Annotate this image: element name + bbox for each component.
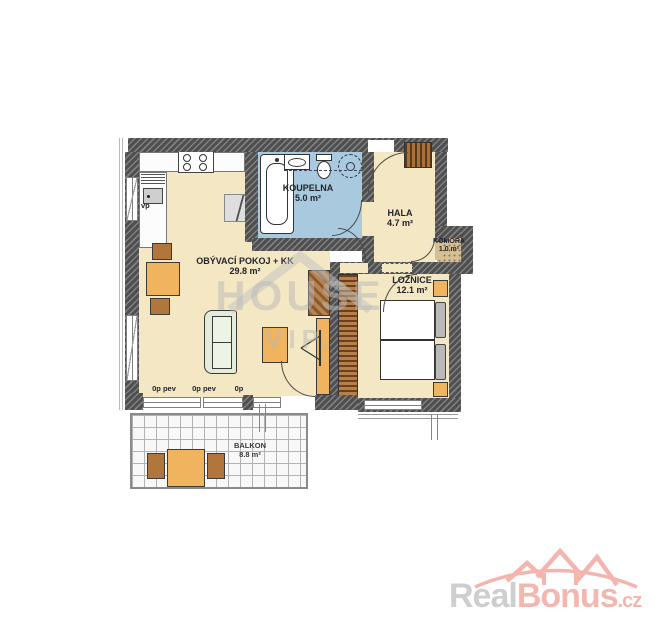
room-name-bathroom: KOUPELNA — [283, 183, 334, 193]
toilet — [314, 154, 334, 180]
room-label-living: OBÝVACÍ POKOJ + KK 29.8 m² — [170, 256, 320, 277]
entrance-opening — [368, 140, 394, 152]
room-area-living: 29.8 m² — [229, 266, 260, 276]
room-name-living: OBÝVACÍ POKOJ + KK — [196, 256, 294, 266]
wall-bedroom-right — [449, 274, 461, 400]
wall-kitchen-bathroom — [245, 152, 258, 242]
dining-chair-top — [152, 243, 172, 260]
window-annotation-3: 0p — [229, 385, 249, 394]
logo-wordmark: RealBonus.cz — [449, 579, 653, 613]
balcony-chair-left — [147, 453, 165, 479]
window-annotation-3-text: 0p — [235, 384, 244, 393]
room-area-storage: 1.0 m² — [439, 246, 459, 253]
bed-headboard-bottom — [435, 344, 446, 380]
bedroom-wardrobe — [338, 274, 358, 396]
living-window-left — [126, 315, 138, 381]
sink-faucet-dot — [147, 195, 150, 198]
bedroom-window — [364, 400, 422, 410]
wall-bottom-right-segment — [315, 395, 358, 410]
room-label-hall: HALA 4.7 m² — [374, 208, 426, 229]
living-window-bottom-2 — [203, 397, 243, 408]
room-name-hall: HALA — [388, 208, 413, 218]
dining-chair-bottom — [150, 298, 170, 315]
stove-burner — [183, 163, 191, 171]
sofa — [204, 310, 237, 374]
hall-living-passage-floor — [362, 200, 374, 238]
sink-annotation: vp — [141, 202, 163, 211]
living-window-bottom-3 — [253, 397, 281, 408]
bed-mattress-bottom — [380, 340, 435, 380]
wall-top — [128, 138, 448, 152]
room-area-bathroom: 5.0 m² — [295, 193, 321, 203]
living-hall-opening — [340, 263, 368, 273]
living-armoire — [308, 270, 330, 316]
stove-burner — [183, 154, 191, 162]
bathroom-dashed-line — [284, 170, 362, 171]
facade-downspout-line — [431, 414, 438, 440]
room-name-bedroom: LOŽNICE — [392, 275, 432, 285]
stove-burner — [199, 154, 207, 162]
window-annotation-1-text: 0p pev — [152, 384, 176, 393]
washing-machine — [338, 154, 362, 178]
bedroom-door-threshold — [381, 263, 413, 273]
sink-annotation-text: vp — [141, 201, 150, 210]
kitchen-vent-grill — [141, 174, 165, 186]
nightstand-bottom — [433, 382, 448, 397]
room-label-balcony: BALKON 8.8 m² — [213, 442, 287, 459]
living-window-bottom-1 — [143, 397, 201, 408]
balcony-door-opening — [281, 396, 315, 410]
toilet-tank — [316, 154, 332, 161]
outer-boundary-line — [119, 138, 123, 410]
balcony-door-threshold — [259, 404, 266, 432]
balcony-table — [167, 449, 205, 487]
floorplan-image: OBÝVACÍ POKOJ + KK 29.8 m² KOUPELNA 5.0 … — [0, 0, 655, 621]
kitchen-stove — [178, 151, 214, 173]
bathtub-drain — [275, 158, 279, 162]
room-area-bedroom: 12.1 m² — [396, 285, 427, 295]
wall-living-bedroom — [330, 262, 338, 398]
sofa-seat — [212, 316, 232, 369]
facade-sill-line — [358, 414, 458, 419]
stove-burner — [199, 163, 207, 171]
tv-stand — [262, 327, 288, 363]
shoe-cabinet — [404, 142, 432, 168]
room-label-storage: KOMORA 1.0 m² — [426, 238, 472, 254]
logo-word-bonus: Bonus — [517, 577, 618, 615]
logo-word-real: Real — [449, 577, 517, 615]
logo-word-cz: .cz — [618, 590, 642, 612]
kitchen-window — [126, 177, 138, 221]
room-label-bedroom: LOŽNICE 12.1 m² — [376, 275, 448, 296]
wall-bottom-corner — [125, 393, 143, 410]
washbasin — [284, 154, 310, 170]
bed-headboard-top — [435, 302, 446, 338]
room-area-balcony: 8.8 m² — [239, 450, 261, 459]
washbasin-bowl — [288, 158, 306, 167]
room-label-bathroom: KOUPELNA 5.0 m² — [266, 183, 350, 204]
window-annotation-2: 0p pev — [185, 385, 223, 394]
room-name-storage: KOMORA — [433, 238, 465, 245]
window-annotation-2-text: 0p pev — [192, 384, 216, 393]
realbonus-logo: RealBonus.cz — [445, 545, 653, 619]
window-annotation-1: 0p pev — [145, 385, 183, 394]
room-area-hall: 4.7 m² — [387, 218, 413, 228]
wall-bottom-stub — [243, 395, 253, 410]
